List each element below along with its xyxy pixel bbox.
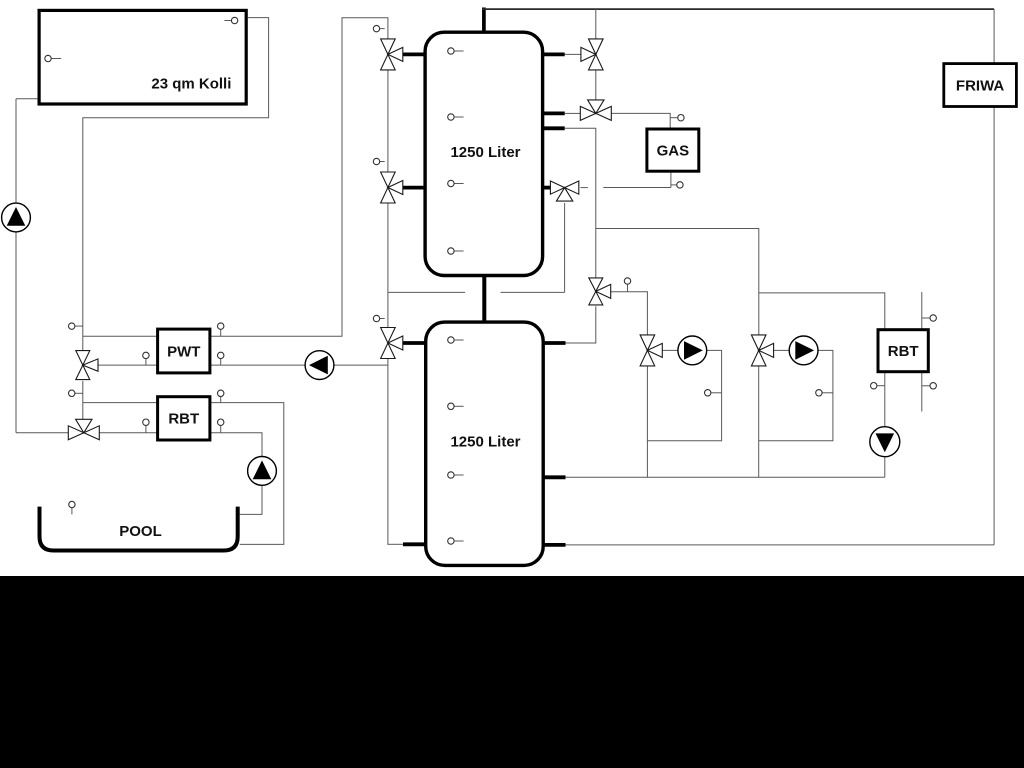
svg-text:POOL: POOL bbox=[119, 523, 162, 540]
svg-text:23 qm Kolli: 23 qm Kolli bbox=[151, 76, 231, 93]
svg-text:1250 Liter: 1250 Liter bbox=[450, 434, 520, 451]
svg-text:RBT: RBT bbox=[168, 411, 199, 428]
svg-text:1250 Liter: 1250 Liter bbox=[450, 144, 520, 161]
svg-text:GAS: GAS bbox=[657, 142, 690, 159]
svg-text:RBT: RBT bbox=[888, 343, 919, 360]
svg-text:PWT: PWT bbox=[167, 343, 200, 360]
svg-text:FRIWA: FRIWA bbox=[956, 77, 1004, 94]
